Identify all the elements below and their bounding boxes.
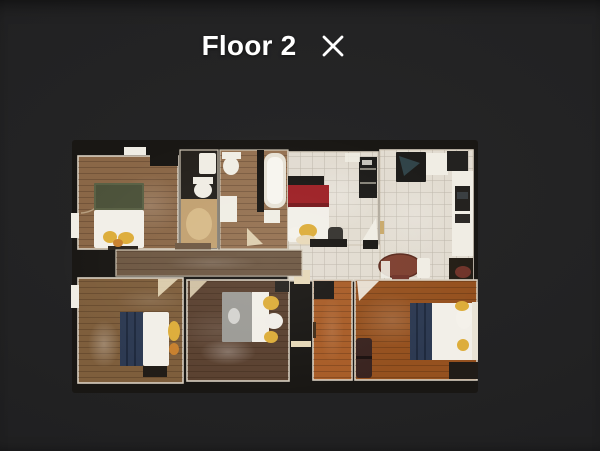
photo-glow xyxy=(55,130,485,394)
door-top xyxy=(124,147,146,155)
floor-selector-overlay: Floor 2 xyxy=(0,0,600,451)
counter xyxy=(426,153,448,175)
dresser xyxy=(449,362,478,379)
upper-cabinet xyxy=(447,151,468,171)
floorplan-image[interactable] xyxy=(0,0,600,451)
